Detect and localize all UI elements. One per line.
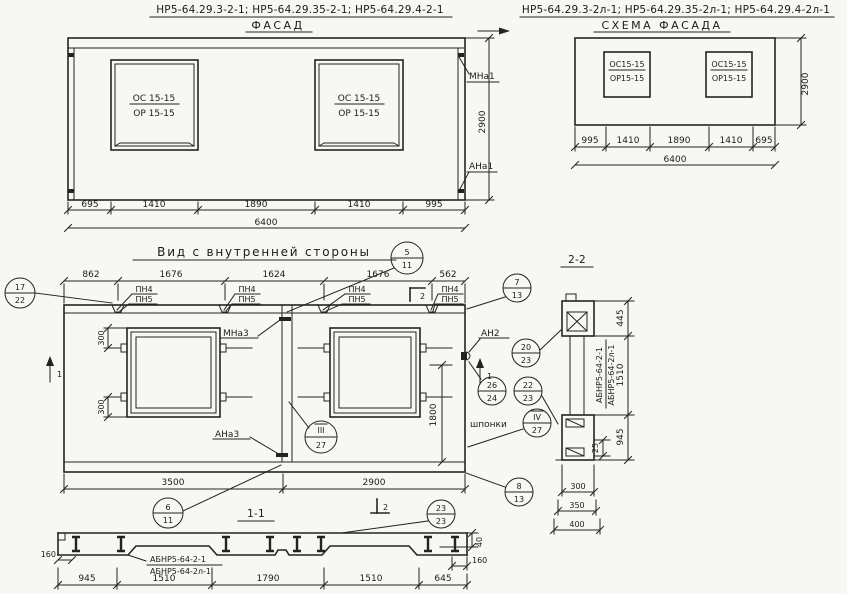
marker-1-label: 1	[57, 370, 62, 379]
section-1-marker-left: 1	[46, 356, 62, 382]
callout-top: 6	[165, 503, 170, 512]
section22-width-dims: 300 350 400	[551, 465, 604, 534]
callout-8-13: 8 13	[466, 473, 533, 506]
inner-panel	[64, 305, 465, 472]
section11-dim-160-right: 160	[449, 556, 488, 570]
callout-23-23: 23 23	[341, 500, 455, 533]
panel-joint	[276, 305, 292, 462]
facade-window-right: ОС 15-15 ОР 15-15	[315, 60, 403, 150]
callout-top: 17	[15, 283, 25, 292]
dim-label: 25	[591, 443, 600, 453]
window-mark-bottom: ОР 15-15	[338, 109, 380, 119]
dim-label: 1510	[616, 363, 626, 386]
section-1-1: 6 11 1-1 2 23 23	[41, 465, 488, 589]
dim-label: 445	[616, 309, 626, 326]
callout-shponki-4-27: шпонки IV 27	[468, 409, 551, 447]
inner-window-left	[121, 328, 252, 417]
dim-label: 1510	[153, 574, 176, 584]
dim-label: 995	[581, 136, 598, 146]
callout-bottom: 23	[521, 356, 531, 365]
window-mark-top: ОС 15-15	[338, 94, 380, 104]
pn-pair: ПН4 ПН5	[431, 285, 463, 311]
schema-title: СХЕМА ФАСАДА	[602, 19, 723, 32]
callout-top: 26	[487, 381, 497, 390]
callout-bottom: 24	[487, 394, 497, 403]
section-2-marker-top: 2	[410, 288, 425, 301]
dim-label: 1510	[360, 574, 383, 584]
dim-label: 1790	[257, 574, 280, 584]
blueprint-page: НР5-64.29.3-2-1; НР5-64.29.35-2-1; НР5-6…	[0, 0, 847, 594]
dim-label: 300	[97, 330, 106, 345]
anchor-label-top: МНа1	[469, 72, 495, 82]
inner-dim-bottom: 3500 2900	[61, 474, 469, 493]
dim-total: 6400	[255, 218, 278, 228]
callout-top: 5	[404, 248, 409, 257]
section11-dim-bottom: 945 1510 1790 1510 645	[55, 568, 471, 589]
window-mark-bottom: ОР 15-15	[133, 109, 175, 119]
arrow-icon	[499, 28, 510, 35]
pn5-label: ПН5	[348, 295, 365, 304]
callout-20-23: 20 23	[512, 330, 561, 367]
inner-dim-top: 862 1676 1624 1676 562	[61, 270, 469, 303]
dim-300-top: 300	[97, 325, 127, 352]
part-label-a: АБНР5-64-2-1	[595, 347, 604, 403]
dim-label: 2900	[801, 72, 811, 95]
part-label-b: АБНР5-64-2л-1	[607, 344, 616, 405]
callout-top: 23	[436, 504, 446, 513]
marker-2-label: 2	[383, 503, 388, 512]
dim-label: 1410	[348, 200, 371, 210]
pn-pair: ПН4 ПН5	[323, 285, 370, 311]
pn4-label: ПН4	[238, 285, 255, 294]
callout-17-22: 17 22	[5, 278, 112, 308]
dim-label: 300	[570, 482, 585, 491]
facade-window-left: ОС 15-15 ОР 15-15	[111, 60, 198, 150]
anchor-hook	[461, 352, 467, 360]
drawing-canvas: НР5-64.29.3-2-1; НР5-64.29.35-2-1; НР5-6…	[0, 0, 847, 594]
marker-2-label: 2	[420, 292, 425, 301]
callout-top: 20	[521, 343, 531, 352]
section11-profile	[58, 533, 467, 555]
dim-label: 40	[475, 537, 484, 547]
dim-label: 1800	[429, 403, 439, 426]
pn4-label: ПН4	[135, 285, 152, 294]
dim-label: 2900	[363, 478, 386, 488]
facade-title: ФАСАД	[251, 19, 304, 32]
pn4-label: ПН4	[348, 285, 365, 294]
section-2-marker-bottom: 2	[371, 499, 389, 513]
dim-label: 160	[472, 556, 487, 565]
facade-codes: НР5-64.29.3-2-1; НР5-64.29.35-2-1; НР5-6…	[156, 4, 444, 16]
window-mark-top: ОС15-15	[609, 60, 644, 69]
schema-codes: НР5-64.29.3-2л-1; НР5-64.29.35-2л-1; НР5…	[522, 4, 830, 16]
dim-label: 160	[41, 550, 56, 559]
callout-bottom: 27	[316, 441, 326, 450]
dim-label: 945	[616, 428, 626, 445]
shponki-label: шпонки	[470, 420, 507, 430]
window-mark-top: ОС15-15	[711, 60, 746, 69]
window-mark-bottom: ОР15-15	[712, 74, 746, 83]
dim-label: 3500	[162, 478, 185, 488]
callout-bottom: 11	[402, 261, 412, 270]
facade-dim-chain: 695 1410 1890 1410 995 6400	[65, 200, 469, 232]
callout-bottom: 27	[532, 426, 542, 435]
anchor-label-bottom: АНа1	[469, 162, 493, 172]
window-mark-top: ОС 15-15	[133, 94, 175, 104]
dim-label: 300	[97, 399, 106, 414]
pn5-label: ПН5	[135, 295, 152, 304]
callout-top: 7	[514, 278, 519, 287]
callout-top: III	[317, 426, 324, 435]
dim-label: 1890	[668, 136, 691, 146]
section22-dim-25: 25	[591, 437, 610, 460]
callout-7-13: 7 13	[467, 274, 531, 309]
dim-label: 350	[569, 501, 584, 510]
callout-top: 22	[523, 381, 533, 390]
callout-bottom: 13	[512, 291, 522, 300]
pn5-label: ПН5	[238, 295, 255, 304]
callout-bottom: 23	[523, 394, 533, 403]
pn-pair: ПН4 ПН5	[224, 285, 260, 311]
facade-elevation: НР5-64.29.3-2-1; НР5-64.29.35-2-1; НР5-6…	[65, 4, 511, 232]
section-2-2: 2-2 АБНР5-64-2-1 АБНР5-64-2л-1	[551, 254, 635, 534]
dim-1800: 1800	[429, 362, 452, 466]
callout-bottom: 22	[15, 296, 25, 305]
facade-schema: НР5-64.29.3-2л-1; НР5-64.29.35-2л-1; НР5…	[520, 4, 834, 169]
window-mark-bottom: ОР15-15	[610, 74, 644, 83]
schema-window-left: ОС15-15 ОР15-15	[604, 52, 650, 97]
dim-label: 695	[81, 200, 98, 210]
schema-window-right: ОС15-15 ОР15-15	[706, 52, 752, 97]
marker-1-label: 1	[487, 372, 492, 381]
dim-total: 6400	[664, 155, 687, 165]
dim-label: 1410	[617, 136, 640, 146]
pn4-label: ПН4	[441, 285, 458, 294]
callout-bottom: 11	[163, 516, 173, 525]
dim-label: 645	[434, 574, 451, 584]
dim-label: 562	[439, 270, 456, 280]
part-label-a: АБНР5-64-2-1	[150, 555, 206, 564]
section-1-1-title: 1-1	[247, 508, 265, 520]
section22-bottom-block	[556, 415, 594, 460]
section-2-2-title: 2-2	[568, 254, 586, 266]
dim-label: 862	[82, 270, 99, 280]
dim-label: 995	[425, 200, 442, 210]
callout-bottom: 13	[514, 495, 524, 504]
dim-label: 400	[569, 520, 584, 529]
schema-dim-height: 2900	[775, 35, 811, 129]
schema-dim-chain: 995 1410 1890 1410 695 6400	[572, 127, 779, 169]
callout-top: 8	[516, 482, 521, 491]
pn-labels: ПН4 ПН5 ПН4 ПН5 ПН4 ПН5 ПН4	[117, 285, 463, 311]
dim-label: 1676	[160, 270, 183, 280]
pn5-label: ПН5	[441, 295, 458, 304]
dim-label: 695	[755, 136, 772, 146]
facade-dim-height: 2900	[465, 35, 494, 204]
dim-label: 1410	[143, 200, 166, 210]
dim-label: 1890	[245, 200, 268, 210]
dim-label: 2900	[478, 110, 488, 133]
inner-title: Вид с внутренней стороны	[157, 245, 371, 259]
section22-top-block	[562, 294, 594, 336]
callout-26-24: 26 24	[469, 362, 506, 405]
dim-label: 1410	[720, 136, 743, 146]
facade-panel	[68, 38, 465, 200]
dim-label: 945	[78, 574, 95, 584]
callout-bottom: 23	[436, 517, 446, 526]
callout-top: IV	[533, 413, 541, 422]
dim-300-bottom: 300	[97, 394, 127, 421]
inner-view: Вид с внутренней стороны 862 1676 1624 1…	[5, 242, 561, 506]
dim-label: 1624	[263, 270, 286, 280]
